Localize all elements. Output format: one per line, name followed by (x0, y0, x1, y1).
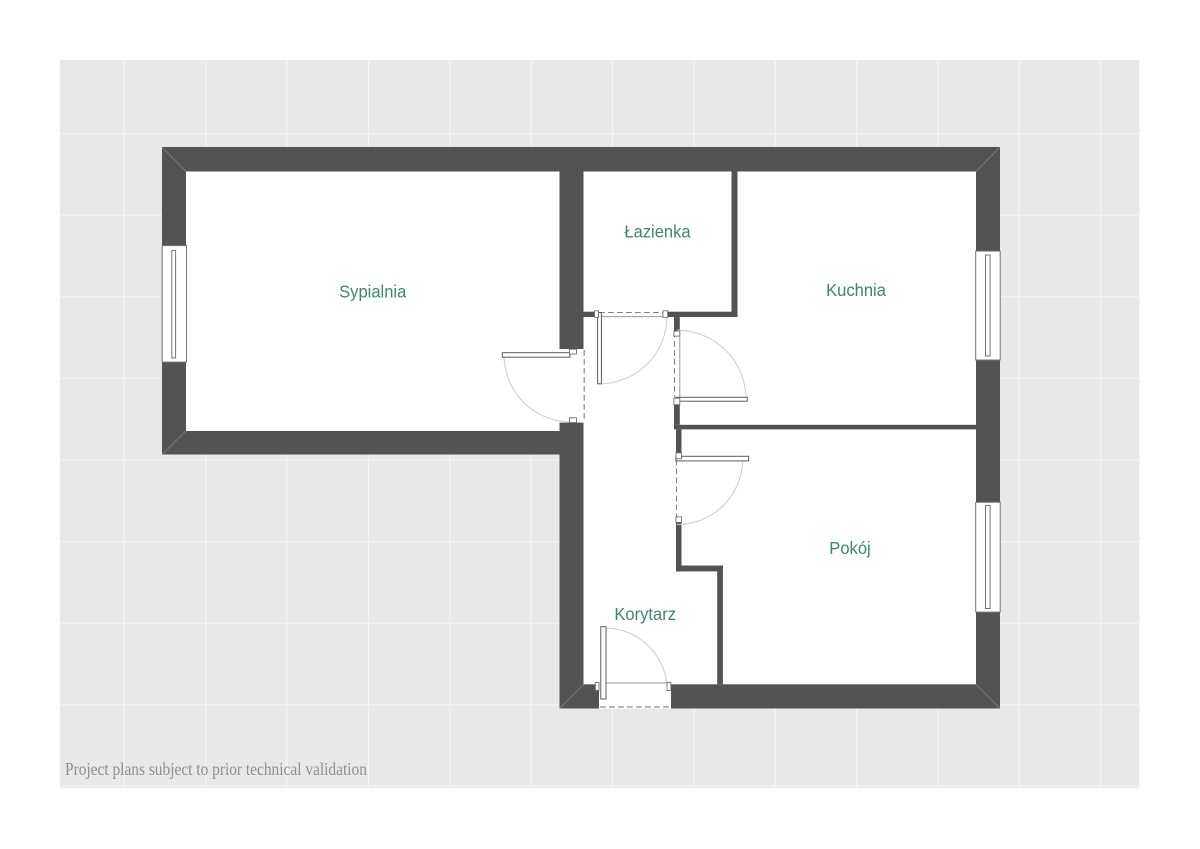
svg-text:Korytarz: Korytarz (614, 603, 676, 624)
svg-text:Łazienka: Łazienka (624, 221, 691, 242)
svg-text:Sypialnia: Sypialnia (339, 281, 407, 302)
svg-text:Project plans subject to prior: Project plans subject to prior technical… (65, 759, 368, 779)
svg-text:Pokój: Pokój (829, 537, 870, 558)
svg-text:Kuchnia: Kuchnia (826, 279, 886, 300)
